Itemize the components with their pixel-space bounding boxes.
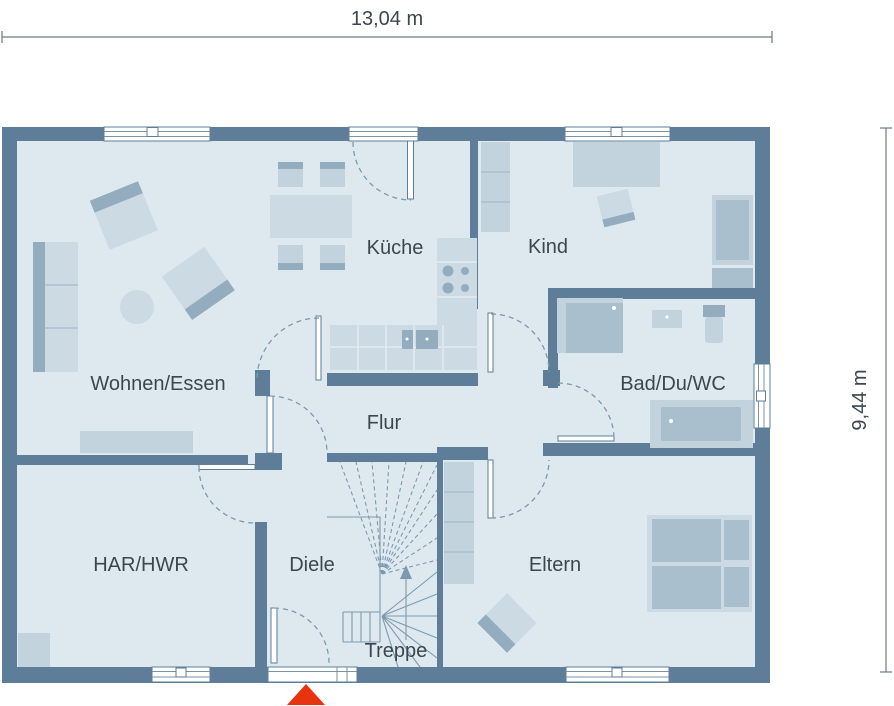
washing-machine: [18, 633, 50, 667]
bathtub: [650, 400, 753, 448]
room-label-diele: Diele: [289, 554, 335, 576]
kind-shelf: [481, 142, 510, 232]
washbasin: [652, 310, 682, 328]
room-label-eltern: Eltern: [529, 554, 581, 576]
window-kind-top: [565, 127, 670, 141]
window-eltern-bottom: [566, 667, 669, 682]
window-living-top: [104, 127, 210, 141]
dimension-width-label: 13,04 m: [351, 8, 423, 30]
coffee-table: [120, 290, 154, 324]
sofa: [33, 242, 78, 372]
room-label-bad-du-wc: Bad/Du/WC: [620, 373, 726, 395]
kitchen-sink: [402, 330, 438, 349]
building: Wohnen/Essen Küche Kind Bad/Du/WC Flur H…: [2, 127, 770, 683]
room-label-har-hwr: HAR/HWR: [93, 554, 189, 576]
kind-wardrobe: [712, 195, 753, 288]
kitchen-counter-vertical: [437, 238, 477, 325]
sideboard: [80, 431, 193, 453]
window-terrace-door: [349, 127, 418, 141]
room-label-kind: Kind: [528, 236, 568, 258]
dimension-right: 9,44 m: [849, 128, 892, 672]
room-label-wohnen-essen: Wohnen/Essen: [90, 373, 225, 395]
floor-plan-drawing: 13,04 m 9,44 m: [0, 0, 894, 706]
double-bed: [647, 515, 752, 612]
window-har-bottom: [152, 667, 210, 682]
kind-bed: [573, 142, 660, 187]
entrance-door-unit: [268, 667, 357, 682]
dimension-top: 13,04 m: [2, 8, 772, 43]
toilet: [703, 305, 725, 343]
room-label-treppe: Treppe: [365, 640, 428, 662]
furniture-har-hwr: [18, 633, 50, 667]
entrance-marker-icon: [287, 684, 325, 705]
eltern-closet: [444, 462, 474, 584]
kitchen-counter-horizontal: [330, 325, 477, 370]
floor-plan-canvas: 13,04 m 9,44 m: [0, 0, 894, 706]
dimension-height-label: 9,44 m: [849, 369, 871, 430]
dining-table: [270, 195, 352, 238]
shower: [557, 298, 623, 353]
window-bath-right: [754, 364, 770, 428]
room-label-flur: Flur: [367, 412, 402, 434]
room-label-kueche: Küche: [367, 237, 424, 259]
